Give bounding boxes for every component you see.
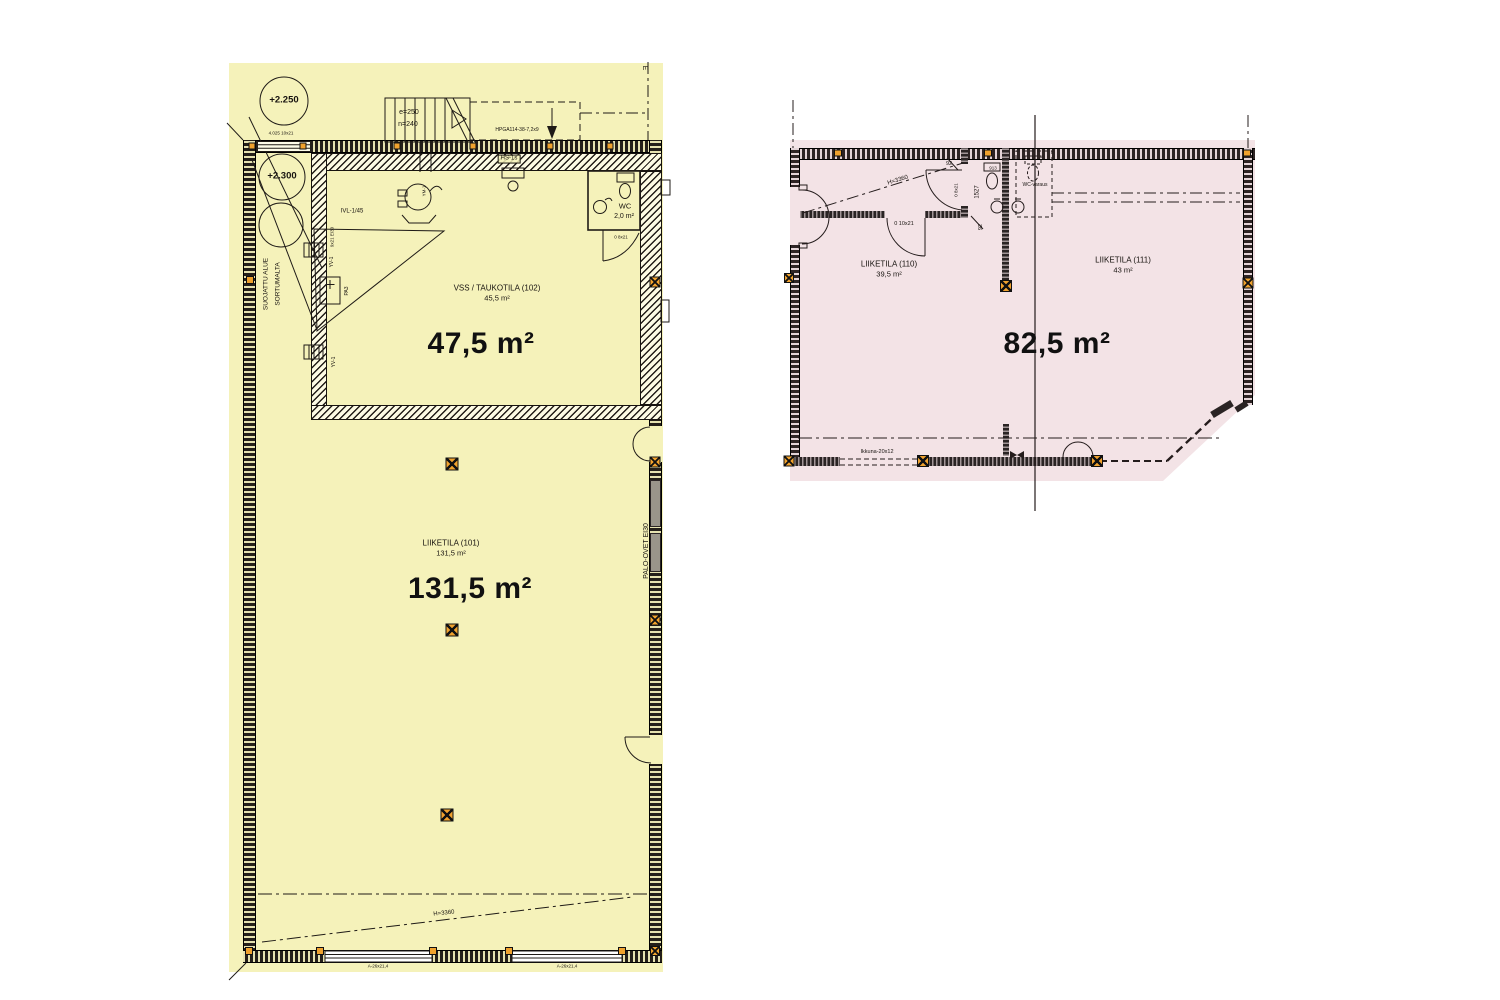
liiketila110-area: 39,5 m² <box>876 271 901 280</box>
stair-riser-label: e=250 <box>399 109 419 117</box>
liiketila101-area: 131,5 m² <box>436 550 466 559</box>
window-label: A-26x21,4 <box>368 963 389 968</box>
wall-marker <box>246 276 254 284</box>
column-marker <box>1091 455 1103 467</box>
liiketila110-title: LIIKETILA (110) <box>861 259 917 268</box>
protected-area-label: SUOJATTU ALUE SORTUMALTA <box>260 258 283 310</box>
liiketila111-title: LIIKETILA (111) <box>1095 255 1151 264</box>
dimension-92-bottom: 92 <box>978 224 984 230</box>
opening-size-label: 4.025 10x21 <box>269 130 294 135</box>
wall-marker <box>547 143 554 150</box>
wall-marker <box>316 947 324 955</box>
ym-device-label: YM-1 <box>421 186 426 197</box>
hs-device-label: HS-1s <box>498 155 521 164</box>
fixture-913-label: 913 <box>989 165 997 170</box>
pa3-device-label: PA3 <box>345 286 351 295</box>
wall-marker <box>784 273 794 283</box>
combined-area-big: 82,5 m² <box>1004 327 1111 362</box>
wall-marker <box>300 143 307 150</box>
vss-area-big: 47,5 m² <box>428 327 535 362</box>
wall-marker <box>249 143 256 150</box>
wall-marker <box>784 456 795 467</box>
wc-door-label: 0 8x21 <box>614 234 628 239</box>
vss-room-area: 45,5 m² <box>484 295 509 304</box>
dimension-1527: 1527 <box>975 185 982 198</box>
wall-marker <box>394 143 401 150</box>
vss-room-title: VSS / TAUKOTILA (102) <box>454 283 541 292</box>
vent-yv1-upper-label: YV-1 <box>330 257 336 268</box>
wall-marker <box>607 143 614 150</box>
wall-marker <box>1243 150 1251 157</box>
window-ikkuna-label: Ikkuna-20x12 <box>860 449 893 455</box>
column-marker <box>446 624 459 637</box>
wall-marker <box>650 457 661 468</box>
linework-overlay <box>0 0 1500 1000</box>
window-label: A-26x21,4 <box>557 963 578 968</box>
wall-marker <box>618 947 626 955</box>
stair-count-label: n=240 <box>398 121 418 129</box>
fire-doors-label: PALO-OVET EI30 <box>643 523 651 579</box>
level-marker-2250: +2.250 <box>269 96 298 107</box>
wall-marker <box>245 947 253 955</box>
wall-marker <box>505 947 513 955</box>
door-ei30-label: 9x21 EI30 <box>329 227 334 247</box>
wall-marker <box>650 615 661 626</box>
door-8x21-label: 0 8x21 <box>953 183 958 197</box>
wc-room-area: 2,0 m² <box>614 213 634 221</box>
wall-marker <box>650 946 660 956</box>
level-marker-2300: +2.300 <box>267 172 296 183</box>
door-10x21-label: 0 10x21 <box>894 221 914 227</box>
protected-area-line2: SORTUMALTA <box>272 258 284 310</box>
wall-marker <box>984 150 992 157</box>
column-marker <box>1000 280 1012 292</box>
wall-marker <box>650 277 661 288</box>
liiketila111-area: 43 m² <box>1113 267 1132 276</box>
wall-marker <box>470 143 477 150</box>
wc-reservation-label: WC-varaus <box>1022 183 1047 189</box>
liiketila101-title: LIIKETILA (101) <box>423 538 480 547</box>
liiketila101-area-big: 131,5 m² <box>408 572 532 607</box>
wall-marker <box>1243 278 1254 289</box>
column-marker <box>917 455 929 467</box>
column-marker <box>446 458 459 471</box>
drawing-canvas: E +2.250 +2.300 4.025 10x21 e=250 n=240 … <box>0 0 1500 1000</box>
column-marker <box>441 809 454 822</box>
wc-room-title: WC <box>619 203 632 212</box>
ivl-device-label: IVL-1/45 <box>341 209 364 216</box>
protected-area-line1: SUOJATTU ALUE <box>260 258 272 310</box>
wall-marker <box>834 150 842 157</box>
grid-label-e: E <box>640 66 648 71</box>
dimension-92-top: 92 <box>946 161 952 167</box>
vent-yv1-lower-label: YV-1 <box>332 357 338 368</box>
left-plan-linework <box>227 62 670 980</box>
wall-marker <box>429 947 437 955</box>
beam-label: HPGA114-38-7,2x9 <box>495 128 538 134</box>
